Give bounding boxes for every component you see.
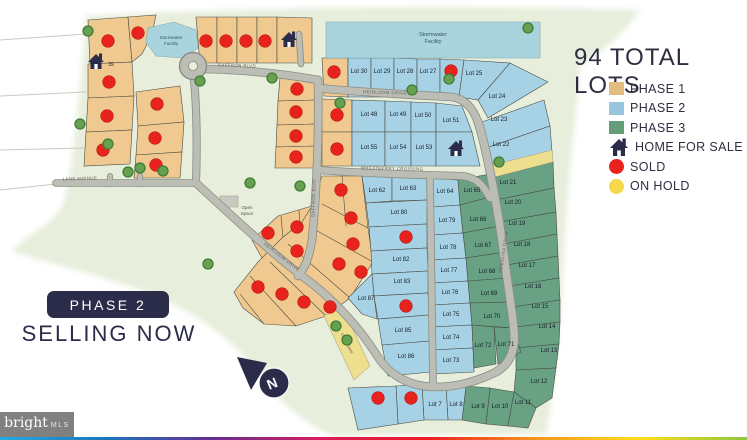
sold-dot [405, 392, 418, 405]
sold-dot [276, 288, 289, 301]
tree-icon [494, 157, 504, 167]
lot-label: Lot 30 [351, 69, 368, 75]
survey-line [0, 184, 56, 190]
legend-item-phase-1: PHASE 1 [609, 79, 743, 99]
sold-dot [220, 35, 233, 48]
lot-label: Lot 24 [489, 94, 506, 100]
tree-icon [123, 167, 133, 177]
tree-icon [444, 74, 454, 84]
sold-dot [290, 130, 303, 143]
sold-dot [355, 266, 368, 279]
lot-label: Lot 67 [475, 243, 492, 249]
brightmls-watermark: bright MLS [0, 412, 74, 437]
lot-label: Lot 71 [498, 342, 515, 348]
sold-dot [324, 301, 337, 314]
sold-dot [331, 143, 344, 156]
sold-dot [103, 76, 116, 89]
on-hold-dot-icon [609, 179, 624, 194]
lot-label: Lot 51 [443, 118, 460, 124]
house-door [287, 42, 290, 47]
sold-dot [262, 227, 275, 240]
lot-label: Lot 15 [532, 304, 549, 310]
sold-dot [400, 300, 413, 313]
lot-label: Lot 78 [440, 245, 457, 251]
sold-dot [290, 151, 303, 164]
house-door [454, 151, 457, 156]
sold-dot [149, 132, 162, 145]
lot-label: Lot 14 [539, 324, 556, 330]
lot-label: Lot 29 [374, 69, 391, 75]
open-space-label: Open [241, 205, 253, 210]
lot-label: Lot 64 [437, 189, 454, 195]
tree-icon [135, 163, 145, 173]
sold-dot [291, 245, 304, 258]
sold-dot [259, 35, 272, 48]
lot-label: Lot 82 [393, 257, 410, 263]
lot-label: Lot 18 [514, 242, 531, 248]
lot-label: Lot 12 [531, 379, 548, 385]
survey-line [0, 34, 86, 40]
lot-label: Lot 63 [400, 186, 417, 192]
tree-icon [267, 73, 277, 83]
tree-icon [407, 85, 417, 95]
lot-label: Lot 87 [358, 296, 375, 302]
stormwater-label: Stormwater [159, 35, 183, 40]
tree-icon [245, 178, 255, 188]
lot-label: Lot 68 [479, 269, 496, 275]
lot-label: Lot 20 [505, 200, 522, 206]
lot-label: Lot 74 [443, 335, 460, 341]
lot-label: Lot 77 [441, 268, 458, 274]
legend-label: PHASE 3 [630, 121, 686, 135]
open-space-label: Space [241, 211, 254, 216]
sold-dot [102, 35, 115, 48]
legend-label: HOME FOR SALE [635, 140, 743, 154]
legend-item-on-hold: ON HOLD [609, 177, 743, 197]
lot-label: Lot 10 [492, 404, 509, 410]
lot-label: Lot 66 [470, 217, 487, 223]
sold-dot [252, 281, 265, 294]
phase-swatch-icon [609, 82, 624, 95]
road [299, 34, 301, 64]
lot-label: Lot 48 [361, 112, 378, 118]
lot-label: Lot 54 [390, 145, 407, 151]
sold-dot [328, 66, 341, 79]
tree-icon [75, 119, 85, 129]
phase-swatch-icon [609, 102, 624, 115]
stormwater-label: Facility [424, 39, 441, 45]
lot-label: Lot 19 [509, 221, 526, 227]
tree-icon [523, 23, 533, 33]
sold-dot [335, 184, 348, 197]
sold-dot [132, 27, 145, 40]
brightmls-mls-text: MLS [51, 422, 70, 429]
lot-label: Lot 80 [391, 210, 408, 216]
lot-label: Lot 27 [420, 69, 437, 75]
road [430, 176, 433, 386]
legend-label: ON HOLD [630, 179, 690, 193]
tree-icon [335, 98, 345, 108]
survey-line [0, 92, 86, 96]
lot-label: Lot 23 [491, 117, 508, 123]
lot-label: Lot 49 [390, 112, 407, 118]
tree-icon [331, 321, 341, 331]
tree-icon [83, 26, 93, 36]
legend-item-phase-3: PHASE 3 [609, 118, 743, 138]
tree-icon [103, 139, 113, 149]
lot-label: Lot 62 [369, 188, 386, 194]
lot-label: Lot 22 [493, 142, 510, 148]
lot-label: Lot 70 [484, 314, 501, 320]
house-door [94, 64, 97, 69]
sold-dot [101, 110, 114, 123]
tree-icon [158, 166, 168, 176]
tree-icon [342, 335, 352, 345]
sold-dot-icon [609, 159, 624, 174]
lot-label: 39 [108, 62, 114, 68]
lot-label: Lot 17 [519, 263, 536, 269]
sold-dot [240, 35, 253, 48]
phase-badge: PHASE 2 [47, 291, 169, 318]
sold-dot [298, 296, 311, 309]
road [194, 80, 197, 183]
lot-label: Lot 83 [394, 279, 411, 285]
selling-now-text: SELLING NOW [16, 321, 202, 347]
lot-label: Lot 11 [515, 400, 532, 406]
sold-dot [291, 83, 304, 96]
site-plan-image: StormwaterFacilityStormwaterFacilityOpen… [0, 0, 747, 440]
lot-label: Lot 9 [471, 404, 485, 410]
tree-icon [195, 76, 205, 86]
lot-label: Lot 75 [443, 312, 460, 318]
phase-swatch-icon [609, 121, 624, 134]
sold-dot [372, 392, 385, 405]
legend-item-phase-2: PHASE 2 [609, 99, 743, 119]
lot-label: Lot 85 [395, 328, 412, 334]
lot-label: Lot 73 [443, 358, 460, 364]
lot-label: Lot 16 [525, 284, 542, 290]
sold-dot [151, 98, 164, 111]
survey-line [0, 148, 84, 150]
home-icon [609, 138, 629, 156]
lot-label: Lot 50 [415, 113, 432, 119]
lot-label: Lot 76 [442, 290, 459, 296]
lot [369, 224, 427, 251]
cul-de-sac-island [189, 62, 198, 71]
sold-dot [347, 238, 360, 251]
lot-label: Lot 65 [464, 188, 481, 194]
tree-icon [203, 259, 213, 269]
sold-dot [400, 231, 413, 244]
sold-dot [200, 35, 213, 48]
legend-item-sold: SOLD [609, 157, 743, 177]
legend-label: PHASE 2 [630, 101, 686, 115]
lot-label: Lot 8 [449, 402, 463, 408]
stormwater-label: Stormwater [419, 32, 447, 38]
brightmls-brand-text: bright [4, 416, 48, 430]
map-legend: PHASE 1PHASE 2PHASE 3HOME FOR SALESOLDON… [609, 79, 743, 196]
sold-dot [331, 109, 344, 122]
sold-dot [333, 258, 346, 271]
legend-label: SOLD [630, 160, 666, 174]
sold-dot [345, 212, 358, 225]
lot-label: Lot 28 [397, 69, 414, 75]
stormwater-label: Facility [164, 41, 179, 46]
lot-label: Lot 7 [428, 402, 442, 408]
lot-label: Lot 25 [466, 71, 483, 77]
lot-label: Lot 86 [398, 354, 415, 360]
lot-label: Lot 53 [416, 145, 433, 151]
lot-label: Lot 72 [475, 343, 492, 349]
lot-label: Lot 13 [541, 348, 558, 354]
lot-label: Lot 79 [439, 218, 456, 224]
lot-label: Lot 55 [361, 145, 378, 151]
lot-label: Lot 69 [481, 291, 498, 297]
tree-icon [295, 181, 305, 191]
legend-label: PHASE 1 [630, 82, 686, 96]
lot-label: Lot 21 [500, 180, 517, 186]
sold-dot [290, 106, 303, 119]
legend-item-home-for-sale: HOME FOR SALE [609, 138, 743, 158]
sold-dot [291, 221, 304, 234]
